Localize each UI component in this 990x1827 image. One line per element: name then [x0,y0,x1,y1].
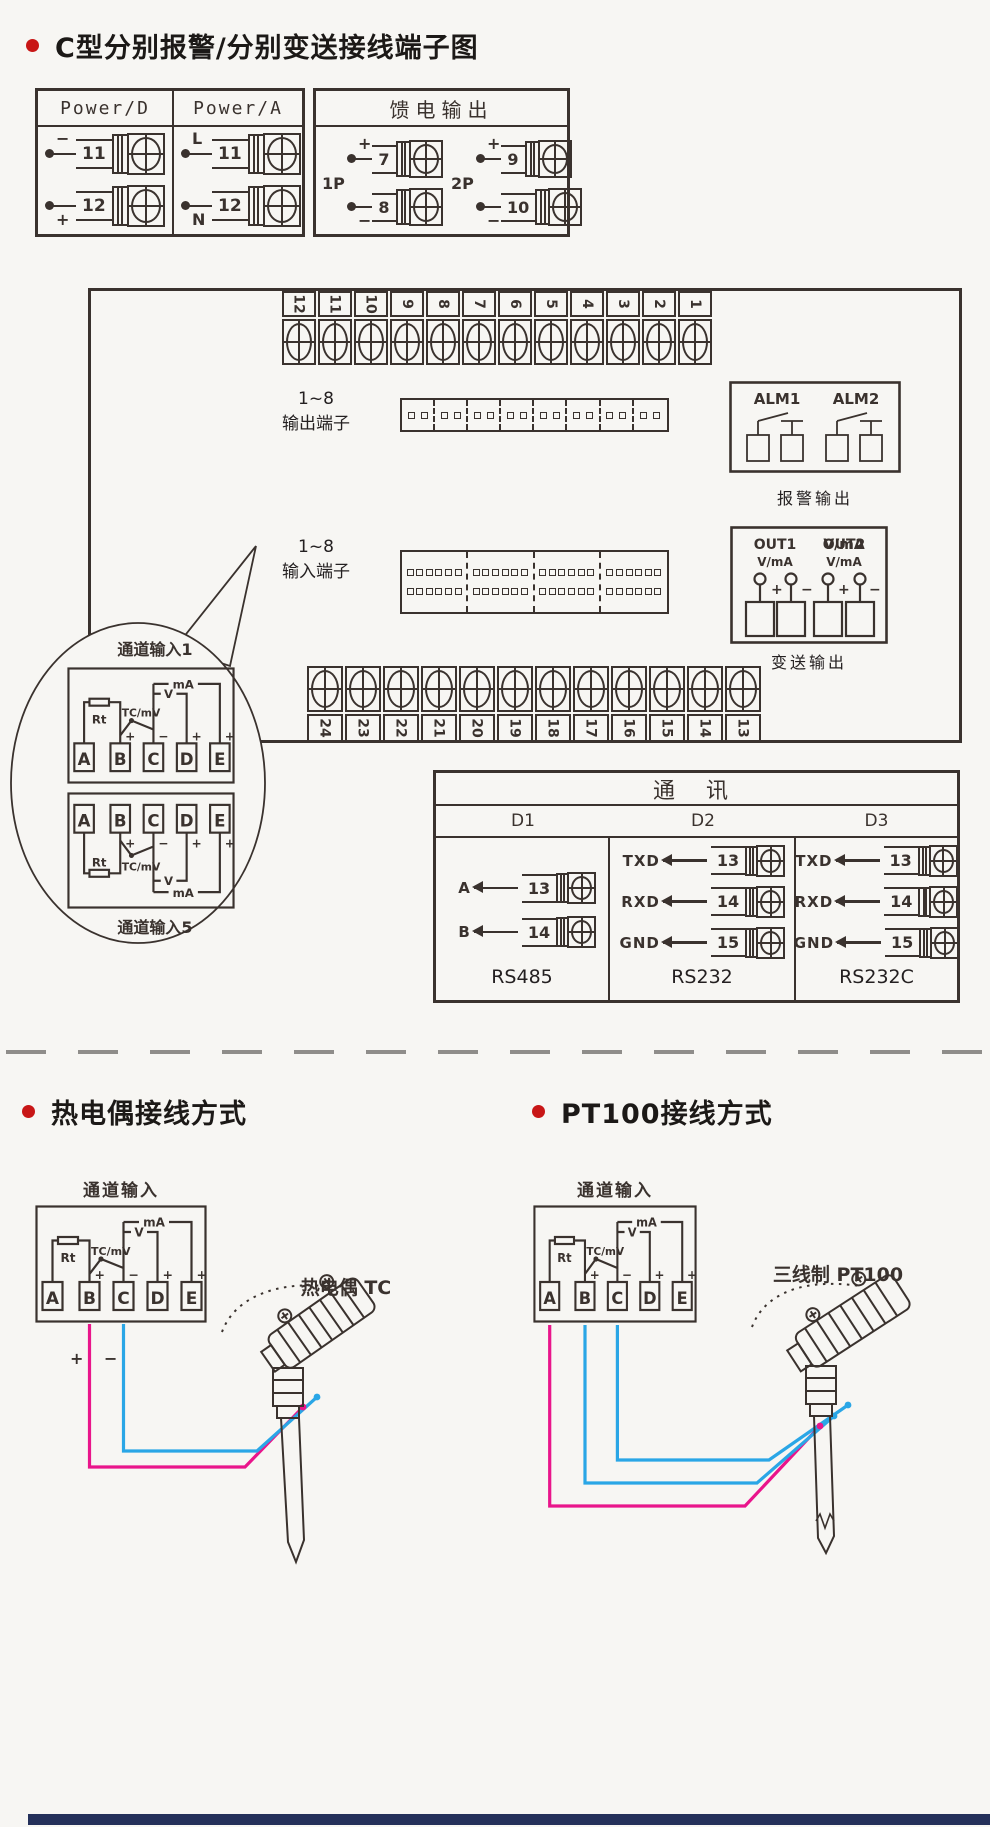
tc-wire-minus: − [104,1349,117,1368]
signal-label: TXD [795,852,835,870]
bottom-terminal-strip: 24 23 22 21 20 19 18 17 [307,666,761,742]
terminal-number: 12 [76,191,112,221]
sign-plus: + [838,582,850,598]
tc-wire-plus: + [70,1349,83,1368]
terminal-cell: 18 [535,666,571,742]
screw-terminal-icon [687,666,723,712]
terminal-cell-number: 5 [534,291,568,317]
screw-terminal-icon [421,666,457,712]
neutral-label: N [192,210,205,229]
screw-terminal-icon [567,916,596,948]
terminal-cell-number: 6 [498,291,532,317]
comm-row: TXD 13 [796,840,957,881]
clamp-bars-icon [535,189,548,225]
screw-terminal-icon [127,185,165,227]
alarm-output-box: ALM1 ALM2 [729,381,901,473]
out2-unit: V/mA [826,555,862,569]
terminal-cell-number: 18 [535,714,571,742]
terminal-e: E [214,811,225,831]
pt-wire-c [617,1325,848,1460]
dashed-divider [6,1050,984,1054]
terminal-cell: 23 [345,666,381,742]
screw-terminal-icon [930,927,959,959]
terminal-number: 15 [711,928,745,957]
terminal-number: 14 [522,918,556,947]
terminal-cell: 15 [649,666,685,742]
power-d-column: Power/D − 11 + 12 [38,91,174,234]
group-label-2p: 2P [451,174,477,193]
rs485-caption: RS485 [436,966,608,988]
comm-body: A 13 B 14 RS485 TXD [436,838,957,1000]
sign-c: − [158,836,168,850]
signal-label: TXD [619,852,663,870]
line-label: L [192,129,202,148]
alm2-label: ALM2 [833,390,880,408]
terminal-cell-number: 15 [649,714,685,742]
screw-terminal-icon [462,319,496,365]
left-arrow-icon [837,941,881,944]
left-arrow-icon [474,931,518,934]
terminal-cell: 1 [678,291,712,365]
input-connector-segment [601,552,667,612]
terminal-cell-number: 14 [687,714,723,742]
clamp-bars-icon [396,141,409,177]
sign-d: + [192,729,202,743]
screw-terminal-icon [611,666,647,712]
clamp-bars-icon [556,917,567,947]
terminal-number: 11 [212,139,248,169]
screw-terminal-icon [642,319,676,365]
feed-row-7: + 7 [348,135,443,183]
comm-col-d3: D3 [796,806,957,836]
comm-row: GND 15 [796,922,957,963]
screw-terminal-icon [678,319,712,365]
feed-output-header: 馈电输出 [316,91,567,127]
clamp-bars-icon [919,928,930,958]
screw-terminal-icon [756,927,785,959]
wire-dot [45,201,54,210]
comm-header: 通 讯 [436,773,957,806]
comm-rs485-cell: A 13 B 14 RS485 [436,838,610,1000]
screw-terminal-icon [548,188,582,226]
feed-group-2p: 2P + 9 − 10 [451,135,582,231]
output-connector-segment [634,400,667,430]
terminal-cell: 9 [390,291,424,365]
terminal-cell-number: 24 [307,714,343,742]
screw-terminal-icon [498,319,532,365]
comm-row: RXD 14 [796,881,957,922]
alarm-output-caption: 报警输出 [729,485,901,509]
terminal-b: B [114,749,127,769]
screw-terminal-icon [282,319,316,365]
screw-terminal-icon [756,886,785,918]
terminal-number: 15 [885,928,919,957]
terminal-number: 13 [711,846,745,875]
out2-label: OUT2 [823,537,866,553]
page-title: C型分别报警/分别变送接线端子图 [55,26,479,65]
terminal-b: B [114,811,127,831]
terminal-cell-number: 11 [318,291,352,317]
comm-rs232-cell: TXD 13 RXD 14 GND 15 [610,838,796,1000]
input-connector [400,550,669,614]
sign-plus: + [771,582,783,598]
power-a-column: Power/A L 11 N 12 [174,91,302,234]
clamp-bars-icon [556,873,567,903]
terminal-cell-number: 17 [573,714,609,742]
wire-dot [181,201,190,210]
comm-column-headers: D1 D2 D3 [436,806,957,838]
terminal-cell-number: 3 [606,291,640,317]
signal-label: B [448,923,474,941]
comm-box: 通 讯 D1 D2 D3 A 13 B 14 [433,770,960,1003]
screw-terminal-icon [929,845,958,877]
screw-terminal-icon [459,666,495,712]
output-connector-segment [468,400,501,430]
ma-label: mA [173,677,195,691]
clamp-bars-icon [745,928,756,958]
terminal-a: A [78,749,91,769]
screw-terminal-icon [534,319,568,365]
terminal-cell: 6 [498,291,532,365]
output-connector-segment [435,400,468,430]
feed-output-box: 馈电输出 1P + 7 − 8 [313,88,570,237]
comm-row: A 13 [436,866,608,910]
channel-input-1-label: 通道输入1 [70,636,240,660]
clamp-bars-icon [112,134,127,174]
sensor-wiring-overlay: 热电偶 TC 三线制 PT100 + − [0,1080,990,1640]
screw-terminal-icon [409,140,443,178]
ma-label: mA [173,886,195,900]
left-arrow-icon [663,859,707,862]
screw-terminal-icon [409,188,443,226]
clamp-bars-icon [918,846,929,876]
clamp-bars-icon [248,186,263,226]
terminal-cell-number: 21 [421,714,457,742]
screw-terminal-icon [649,666,685,712]
terminal-number: 11 [76,139,112,169]
polarity-minus: − [358,211,371,230]
alm1-label: ALM1 [754,390,801,408]
left-arrow-icon [663,941,707,944]
terminal-cell: 17 [573,666,609,742]
screw-terminal-icon [606,319,640,365]
sign-b: + [125,729,135,743]
terminal-cell-number: 2 [642,291,676,317]
terminal-cell-number: 7 [462,291,496,317]
signal-label: RXD [795,893,837,911]
comm-rs232c-cell: TXD 13 RXD 14 GND 15 [796,838,957,1000]
page-title-row: C型分别报警/分别变送接线端子图 [26,26,479,65]
output-connector-segment [534,400,567,430]
rs232c-caption: RS232C [796,966,957,988]
terminal-c: C [147,749,159,769]
screw-terminal-icon [354,319,388,365]
sign-b: + [125,836,135,850]
tc-wire-negative [124,1324,318,1451]
terminal-number: 14 [711,887,745,916]
terminal-cell-number: 12 [282,291,316,317]
terminal-cell: 21 [421,666,457,742]
terminal-d: D [180,811,194,831]
terminal-number: 9 [501,145,525,174]
screw-terminal-icon [570,319,604,365]
terminal-cell: 3 [606,291,640,365]
out1-label: OUT1 [754,537,797,553]
channel-input-5-label: 通道输入5 [70,914,240,938]
terminal-cell-number: 8 [426,291,460,317]
clamp-bars-icon [918,887,929,917]
wire-dot [181,149,190,158]
polarity-plus: + [487,134,500,153]
screw-terminal-icon [345,666,381,712]
feed-row-9: + 9 [477,135,582,183]
terminal-cell-number: 1 [678,291,712,317]
channel-input-5-diagram: Rt TC/mV V mA + − + + A B C D E [67,792,235,909]
terminal-number: 13 [884,846,918,875]
terminal-cell-number: 10 [354,291,388,317]
output-connector-segment [501,400,534,430]
terminal-cell: 16 [611,666,647,742]
power-a-row-12: N 12 [174,179,302,231]
transmit-output-box: OUT1 V/mA V/mA OUT2 V/mA + − + − [730,526,888,644]
polarity-plus: + [358,134,371,153]
screw-terminal-icon [127,133,165,175]
terminal-cell-number: 19 [497,714,533,742]
polarity-plus: + [56,210,69,229]
top-terminal-strip: 12 11 10 9 8 7 6 5 [282,291,712,365]
comm-col-d1: D1 [436,806,610,836]
terminal-cell-number: 22 [383,714,419,742]
power-terminal-box: Power/D − 11 + 12 Power/A L 11 [35,88,305,237]
input-connector-segment [535,552,601,612]
tc-probe-label: 热电偶 TC [301,1276,392,1299]
screw-terminal-icon [497,666,533,712]
wiring-diagram-page: C型分别报警/分别变送接线端子图 Power/D − 11 + 12 Power… [0,0,990,1827]
screw-terminal-icon [318,319,352,365]
red-bullet-icon [26,39,39,52]
screw-terminal-icon [725,666,761,712]
screw-terminal-icon [426,319,460,365]
terminal-number: 7 [372,145,396,174]
terminal-number: 14 [884,887,918,916]
screw-terminal-icon [929,886,958,918]
screw-terminal-icon [383,666,419,712]
pt-probe-label: 三线制 PT100 [773,1263,903,1286]
rt-label: Rt [92,712,107,726]
left-arrow-icon [836,859,880,862]
screw-terminal-icon [567,872,596,904]
terminal-number: 10 [501,193,535,222]
output-connector [400,398,669,432]
terminal-cell: 11 [318,291,352,365]
sign-minus: − [801,582,813,598]
terminal-cell: 19 [497,666,533,742]
output-connector-segment [601,400,634,430]
group-label-1p: 1P [322,174,348,193]
terminal-cell: 20 [459,666,495,742]
polarity-minus: − [56,129,69,148]
output-terminals-label: 1~8 输出端子 [241,387,391,437]
comm-row: GND 15 [610,922,794,963]
terminal-cell: 12 [282,291,316,365]
terminal-cell: 22 [383,666,419,742]
rs232-caption: RS232 [610,966,794,988]
polarity-minus: − [487,211,500,230]
screw-terminal-icon [263,133,301,175]
left-arrow-icon [836,900,880,903]
left-arrow-icon [663,900,707,903]
comm-col-d2: D2 [610,806,796,836]
feed-row-10: − 10 [477,183,582,231]
terminal-cell-number: 20 [459,714,495,742]
signal-label: GND [619,934,663,952]
screw-terminal-icon [307,666,343,712]
terminal-cell-number: 13 [725,714,761,742]
feed-row-8: − 8 [348,183,443,231]
pt-wire-a [550,1325,820,1506]
clamp-bars-icon [112,186,127,226]
terminal-a: A [78,811,91,831]
terminal-cell-number: 4 [570,291,604,317]
sign-e: + [225,836,235,850]
power-a-row-11: L 11 [174,127,302,179]
clamp-bars-icon [396,189,409,225]
signal-label: A [448,879,474,897]
relay-symbol-alm1 [747,413,803,461]
relay-symbol-alm2 [826,413,882,461]
terminal-d: D [180,749,194,769]
sign-d: + [192,836,202,850]
terminal-cell: 8 [426,291,460,365]
out1-unit: V/mA [757,555,793,569]
terminal-cell: 14 [687,666,723,742]
input-connector-segment [468,552,534,612]
pt-probe [752,1257,912,1553]
terminal-number: 12 [212,191,248,221]
rt-label: Rt [92,855,107,869]
terminal-cell: 10 [354,291,388,365]
tc-label: TC/mV [122,707,161,720]
power-a-header: Power/A [174,91,302,127]
sign-minus: − [869,582,881,598]
channel-input-1-diagram: Rt TC/mV V mA + − + + A B C D E [67,667,235,784]
comm-row: TXD 13 [610,840,794,881]
dotted-arc [752,1284,860,1327]
terminal-cell-number: 9 [390,291,424,317]
terminal-cell-number: 16 [611,714,647,742]
clamp-bars-icon [525,141,538,177]
left-arrow-icon [474,887,518,890]
terminal-number: 8 [372,193,396,222]
terminal-c: C [147,811,159,831]
terminal-e: E [214,749,225,769]
screw-terminal-icon [535,666,571,712]
signal-label: GND [794,934,837,952]
sign-c: − [158,729,168,743]
terminal-cell: 24 [307,666,343,742]
comm-row: RXD 14 [610,881,794,922]
wire-dot [45,149,54,158]
screw-terminal-icon [390,319,424,365]
terminal-cell: 13 [725,666,761,742]
screw-terminal-icon [573,666,609,712]
power-d-header: Power/D [38,91,172,127]
terminal-number: 13 [522,874,556,903]
clamp-bars-icon [248,134,263,174]
screw-terminal-icon [538,140,572,178]
input-connector-segment [402,552,468,612]
signal-label: RXD [619,893,663,911]
terminal-cell: 7 [462,291,496,365]
output-connector-segment [402,400,435,430]
terminal-cell: 5 [534,291,568,365]
power-d-row-12: + 12 [38,179,172,231]
clamp-bars-icon [745,846,756,876]
power-d-row-11: − 11 [38,127,172,179]
footer-bar [28,1814,990,1825]
terminal-cell: 2 [642,291,676,365]
sign-e: + [225,729,235,743]
comm-row: B 14 [436,910,608,954]
feed-group-1p: 1P + 7 − 8 [322,135,443,231]
tc-label: TC/mV [122,860,161,873]
screw-terminal-icon [263,185,301,227]
screw-terminal-icon [756,845,785,877]
terminal-cell: 4 [570,291,604,365]
tc-probe [222,1261,377,1562]
terminal-cell-number: 23 [345,714,381,742]
output-connector-segment [567,400,600,430]
clamp-bars-icon [745,887,756,917]
